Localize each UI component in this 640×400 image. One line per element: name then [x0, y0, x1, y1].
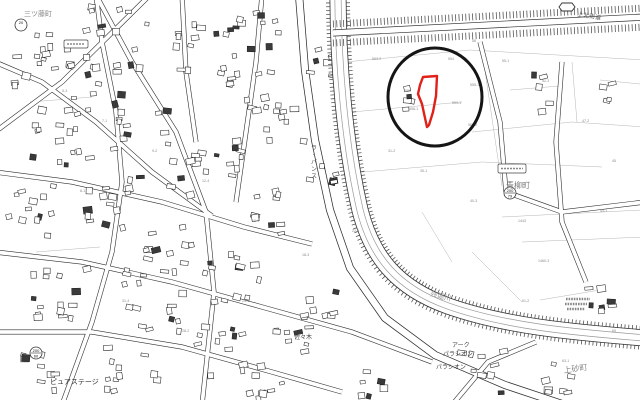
building [471, 369, 476, 372]
route-shield-icon [559, 3, 575, 11]
building [145, 327, 153, 332]
building [74, 111, 81, 117]
building [239, 332, 247, 337]
building [125, 191, 131, 196]
building [25, 207, 31, 211]
street-casing [0, 252, 432, 362]
river-channel [338, 0, 640, 338]
building [102, 186, 109, 190]
building [258, 13, 265, 19]
parcel-boundary-line [510, 86, 560, 90]
building [256, 276, 261, 283]
building [180, 261, 188, 266]
building [51, 372, 60, 376]
town-label-mitsufuji: 三ツ藤町 [24, 9, 52, 18]
building [95, 81, 102, 86]
parcel-number: 63-1 [562, 359, 569, 363]
building [220, 65, 226, 71]
parcel-number: 12-4 [202, 179, 209, 183]
parcel-number: 15-1 [252, 219, 259, 223]
building [116, 365, 122, 371]
building [276, 222, 285, 227]
building [76, 148, 82, 155]
building [226, 81, 234, 86]
building [106, 202, 114, 206]
building [18, 217, 26, 224]
building [175, 318, 180, 324]
building [191, 35, 199, 41]
building [267, 137, 273, 143]
building [263, 104, 268, 110]
building [64, 107, 73, 113]
building [551, 362, 556, 367]
parcel-number: 555-1 [470, 83, 479, 87]
building [407, 94, 412, 99]
building [168, 316, 174, 322]
building [192, 22, 196, 28]
river-bank-line [338, 0, 640, 338]
parcel-number: 58 [472, 39, 476, 43]
building [6, 214, 13, 220]
parcel-number: 31-4 [122, 299, 129, 303]
building [141, 353, 149, 357]
building [275, 31, 281, 36]
building [545, 389, 552, 394]
building [41, 194, 47, 200]
building [101, 221, 110, 229]
building [214, 153, 219, 157]
building [377, 378, 385, 385]
building [284, 330, 290, 335]
building [112, 28, 119, 35]
building [37, 364, 44, 368]
building [90, 91, 96, 96]
building [186, 191, 195, 199]
building [86, 108, 91, 113]
building [21, 72, 31, 81]
building [232, 145, 238, 151]
building [267, 70, 275, 75]
building [165, 142, 170, 146]
building [48, 43, 53, 50]
building [89, 8, 95, 13]
building [42, 51, 51, 58]
building [22, 354, 30, 361]
building-label-palacion: パラシオン [443, 351, 473, 358]
building [45, 233, 51, 238]
building [166, 250, 173, 256]
building-label-la-vance: バ [311, 159, 317, 166]
parcel-number: 40-3 [470, 199, 477, 203]
building [276, 103, 282, 108]
building [211, 299, 218, 305]
label-sasaki: 佐々木 [294, 333, 312, 341]
parcel-number: 47-2 [582, 119, 589, 123]
building [18, 189, 26, 194]
building [83, 265, 92, 272]
parcel-number: 5-3 [62, 89, 67, 93]
building [177, 68, 185, 71]
building [177, 175, 184, 181]
building [599, 84, 607, 90]
building [169, 158, 177, 165]
building [306, 296, 314, 304]
building [188, 242, 194, 248]
building [310, 307, 317, 314]
building [57, 307, 65, 315]
building [116, 372, 123, 379]
parcel-number: 558-1 [409, 107, 418, 111]
building [280, 109, 287, 114]
building [232, 138, 241, 145]
building [597, 285, 606, 293]
building [31, 296, 36, 300]
building [83, 27, 91, 33]
parcel-boundary-line [572, 62, 577, 122]
building [113, 69, 121, 74]
parcel-number: 554 [448, 57, 454, 61]
building [143, 256, 153, 262]
building [46, 32, 53, 37]
building [148, 231, 156, 236]
building [127, 177, 133, 184]
building [30, 154, 37, 161]
building [239, 155, 243, 160]
parcel-boundary-line [600, 80, 640, 84]
building [56, 123, 64, 127]
parcel-boundary-line [36, 247, 100, 252]
building [589, 303, 593, 308]
building [228, 251, 233, 258]
building [194, 342, 202, 347]
building [37, 106, 46, 114]
building [140, 274, 146, 277]
building [260, 94, 269, 102]
building [136, 64, 143, 71]
building [214, 31, 219, 37]
building [167, 184, 176, 190]
building [41, 57, 46, 61]
building [236, 16, 243, 23]
building [227, 162, 234, 166]
building [105, 377, 110, 382]
building [306, 70, 314, 74]
building [86, 187, 92, 194]
building [37, 62, 42, 66]
building [228, 77, 236, 81]
building [181, 242, 189, 249]
building [166, 307, 172, 314]
building [160, 130, 169, 135]
building [208, 373, 214, 379]
building [315, 47, 322, 52]
building [275, 191, 281, 198]
building [499, 348, 508, 355]
building [117, 119, 122, 125]
parcel-boundary-line [345, 50, 640, 62]
building [113, 62, 121, 68]
building [230, 327, 235, 332]
building [68, 303, 77, 307]
badge-bottom-value: 79 [508, 194, 513, 199]
building [150, 371, 158, 379]
building [155, 111, 161, 116]
building [257, 363, 265, 370]
parcel-boundary-line [422, 212, 452, 262]
river-channel-line [338, 0, 640, 338]
building [363, 369, 371, 373]
parcel-number: 1443 [518, 219, 526, 223]
building [50, 184, 56, 189]
building [34, 54, 40, 59]
badge-top-value: 200 [33, 348, 40, 353]
building [305, 326, 314, 329]
building [598, 308, 604, 314]
building [219, 331, 226, 336]
building [247, 46, 255, 52]
building [197, 25, 206, 31]
building-label-la-vance: ・ [311, 153, 317, 159]
building [31, 271, 37, 278]
building [55, 138, 64, 144]
building [228, 174, 236, 178]
building [117, 91, 125, 98]
building [333, 289, 340, 295]
building-label-ark: アーク [452, 342, 470, 349]
building [330, 310, 339, 316]
building [330, 180, 337, 185]
building [234, 256, 240, 261]
building [138, 324, 146, 329]
parcel-number: 18-3 [302, 253, 309, 257]
building [195, 157, 201, 161]
building [34, 217, 40, 224]
building [320, 164, 325, 169]
building [43, 275, 49, 279]
building [531, 72, 536, 78]
building [173, 43, 180, 50]
building [57, 273, 63, 279]
building [225, 347, 233, 352]
building [234, 165, 239, 172]
building-label-la-vance: ラ [311, 145, 317, 152]
building [12, 82, 17, 89]
building-label-la-vance: ス [311, 173, 317, 180]
building [498, 391, 504, 395]
street [506, 192, 640, 212]
parcel-number: 556 [405, 89, 411, 93]
building [284, 119, 289, 124]
building [71, 150, 76, 155]
river-body [338, 0, 640, 338]
building [132, 47, 138, 53]
building [380, 385, 388, 392]
building [232, 333, 237, 339]
building [585, 287, 593, 291]
building [110, 146, 118, 151]
building [172, 268, 177, 275]
building [546, 101, 554, 106]
building [37, 305, 43, 309]
map-viewport: 200792006020553-2554555-1556558-1553-156… [0, 0, 640, 400]
building [163, 108, 172, 115]
building [48, 211, 54, 217]
building [252, 107, 262, 114]
building [92, 64, 100, 72]
building [104, 386, 110, 392]
parcel-boundary-line [522, 237, 640, 242]
building [52, 387, 57, 394]
building [137, 280, 142, 286]
building [85, 71, 92, 78]
building [188, 43, 194, 48]
building [538, 108, 546, 115]
building [267, 389, 274, 393]
building [67, 129, 73, 136]
building [64, 163, 68, 167]
building [34, 314, 43, 321]
building [167, 304, 176, 307]
building [118, 109, 125, 115]
building [333, 172, 340, 177]
parcel-boundary-line [362, 162, 602, 172]
building [300, 349, 309, 355]
building [272, 19, 278, 24]
parcel-number: 7-1 [102, 119, 107, 123]
parcel-number: 61-2 [522, 299, 529, 303]
building [85, 156, 94, 161]
building-label-la-vance: ン [311, 167, 317, 173]
building [125, 10, 131, 14]
building [300, 138, 307, 144]
badge-top-value: 20 [19, 20, 24, 25]
building [113, 207, 120, 215]
building [233, 26, 239, 29]
building [29, 198, 38, 205]
building-label-pure-stage: ピュアステージ [50, 378, 99, 386]
building [201, 324, 210, 330]
building [285, 339, 291, 343]
building [246, 390, 254, 397]
building [250, 262, 259, 268]
building [232, 53, 237, 58]
building [487, 371, 495, 379]
building [119, 224, 125, 231]
building [607, 299, 616, 304]
building [68, 315, 73, 321]
building [108, 193, 117, 200]
parcel-number: 35-1 [420, 169, 427, 173]
building [360, 380, 366, 384]
building [116, 7, 122, 13]
building [252, 373, 260, 379]
parcel-number: 22-5 [352, 229, 359, 233]
parcel-number: 8-1 [80, 189, 85, 193]
building [71, 96, 76, 99]
building [37, 380, 45, 384]
building [97, 29, 105, 36]
building [490, 363, 499, 368]
building [72, 288, 81, 295]
building [567, 374, 575, 380]
cadastral-map-canvas: 200792006020553-2554555-1556558-1553-156… [0, 0, 640, 400]
building [176, 328, 181, 334]
building [208, 261, 213, 265]
parcel-number: 31-2 [388, 149, 395, 153]
parcel-number: 43-1 [600, 209, 607, 213]
building [259, 390, 267, 398]
building [136, 175, 144, 179]
building [51, 67, 58, 71]
building [274, 109, 280, 114]
street [0, 252, 432, 362]
building [203, 169, 209, 175]
building [57, 159, 62, 164]
building [244, 97, 250, 103]
building [304, 342, 309, 346]
building [73, 127, 77, 132]
badge-bottom-value: 60 [34, 354, 39, 359]
parcel-boundary-line [472, 252, 522, 302]
building [85, 212, 91, 219]
building [36, 127, 41, 132]
building [607, 97, 612, 101]
building [202, 270, 208, 276]
parcel-number: 25-1 [242, 299, 249, 303]
parcel-number: 28-2 [182, 329, 189, 333]
town-label-kamisunacho: 上砂町 [563, 362, 588, 375]
building [110, 388, 117, 394]
building [536, 84, 543, 91]
building [223, 32, 230, 38]
parcel-number: 1460-3 [538, 259, 549, 263]
building [358, 392, 365, 399]
building [109, 359, 114, 365]
building [478, 354, 485, 358]
building-label-palacion-2: パラシオン [436, 364, 466, 371]
building [240, 367, 245, 374]
parcel-number: 45 [612, 159, 616, 163]
highlighted-parcel-outline [418, 76, 437, 127]
building [179, 290, 187, 297]
building [123, 123, 130, 127]
building [541, 377, 550, 385]
building [44, 268, 50, 274]
building [197, 333, 203, 338]
building [608, 81, 616, 86]
building [215, 338, 220, 344]
building [160, 269, 169, 273]
building [273, 329, 281, 334]
building [103, 345, 112, 351]
building [145, 22, 149, 26]
parcel-number: 55-1 [502, 59, 509, 63]
town-label-aoyagicho: 青柳町 [506, 180, 530, 190]
building [290, 106, 299, 112]
building [99, 192, 107, 200]
building [313, 58, 319, 64]
building [279, 381, 284, 385]
parcel-number: 65 [612, 329, 616, 333]
building [268, 222, 274, 227]
parcel-number: 553-1 [452, 101, 461, 105]
parcel-number: 553-2 [372, 57, 381, 61]
building [83, 54, 90, 60]
building [264, 127, 270, 132]
building [366, 393, 372, 399]
building [128, 62, 134, 69]
building [179, 224, 186, 230]
